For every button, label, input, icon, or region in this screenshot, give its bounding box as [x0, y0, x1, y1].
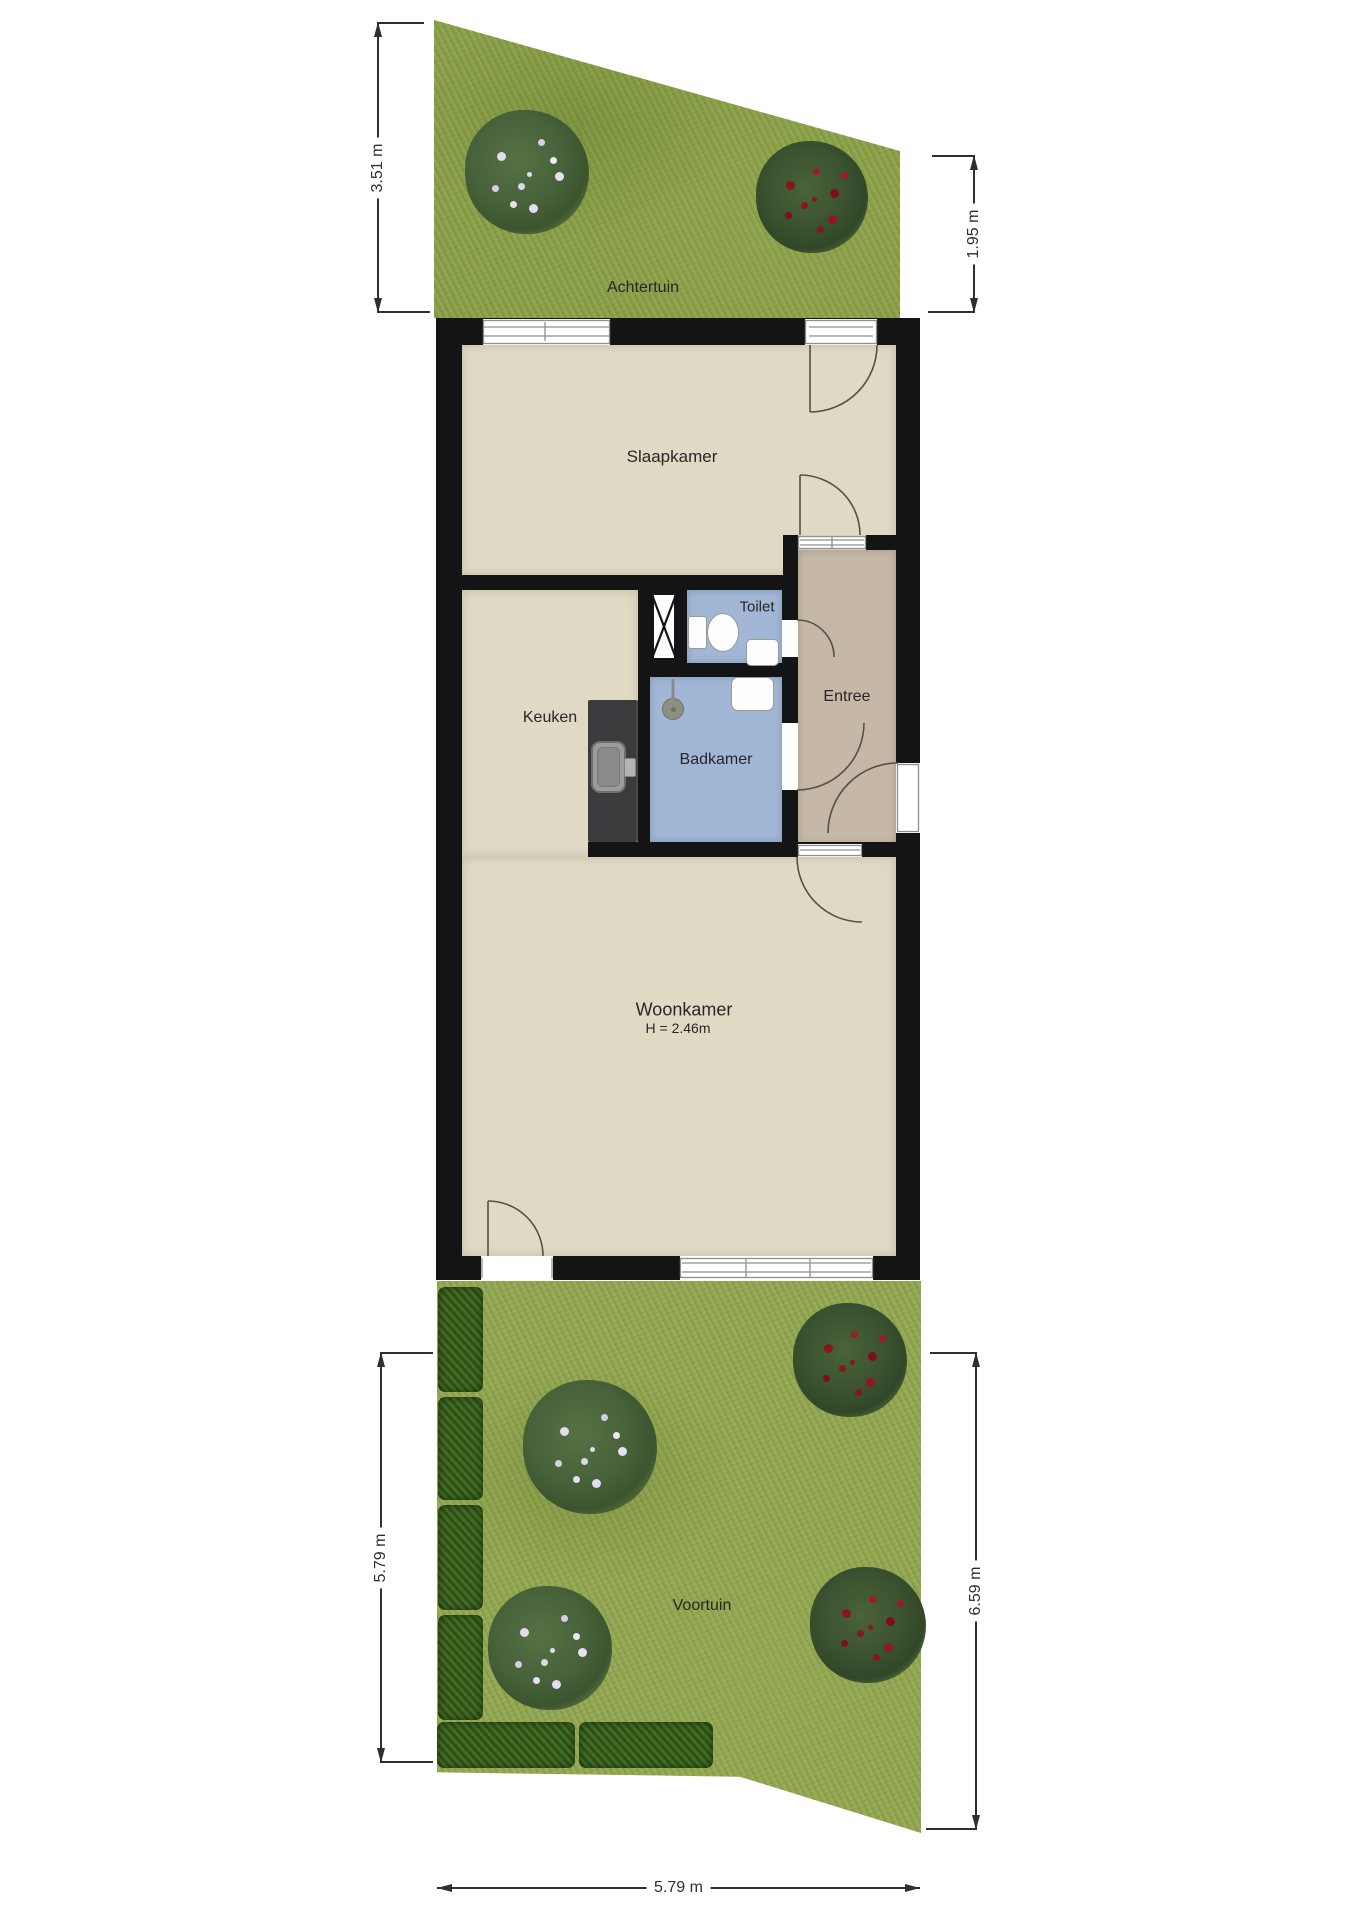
arrow-right-icon	[905, 1884, 920, 1892]
hedge-left-2	[438, 1397, 483, 1500]
arrow-left-icon	[437, 1884, 452, 1892]
white-flowers-icon	[590, 1447, 595, 1452]
dim-label: 5.79 m	[646, 1879, 711, 1897]
dim-tick	[381, 1352, 433, 1354]
back-garden-label: Achtertuin	[607, 279, 679, 297]
white-flowers-icon	[550, 1648, 555, 1653]
dim-label: 3.51 m	[367, 137, 389, 198]
shaft-symbol	[649, 590, 679, 663]
dim-back-garden-right: 1.95 m	[973, 155, 975, 313]
keuken-label: Keuken	[523, 709, 577, 727]
hedge-left-3	[438, 1505, 483, 1610]
flower-bush-icon	[488, 1586, 612, 1710]
woonkamer-label: Woonkamer	[636, 1000, 733, 1021]
wall-entree-top-right	[866, 535, 896, 550]
drain-dot-icon	[671, 707, 676, 712]
floorplan-canvas: Achtertuin	[0, 0, 1358, 1920]
wall-slaapkamer-bottom	[462, 575, 798, 590]
red-roses-icon	[868, 1625, 873, 1630]
dim-tick	[932, 155, 974, 157]
back-door	[805, 319, 877, 345]
dim-label: 1.95 m	[963, 204, 985, 265]
rose-bush-icon	[810, 1567, 926, 1683]
entree-label: Entree	[823, 688, 870, 706]
hedge-left-1	[438, 1287, 483, 1392]
dim-tick	[381, 1761, 433, 1763]
arrow-up-icon	[972, 1352, 980, 1367]
wall-entree-top-stub	[783, 535, 798, 590]
window-entree-slaapkamer	[798, 536, 866, 549]
kitchen-sink	[591, 741, 626, 793]
door-badkamer	[782, 723, 798, 790]
rose-bush-icon	[756, 141, 868, 253]
room-woonkamer	[462, 857, 896, 1256]
dim-tick	[930, 1352, 976, 1354]
front-door	[896, 763, 920, 833]
dim-label: 5.79 m	[370, 1527, 392, 1588]
red-roses-icon	[850, 1360, 855, 1365]
dim-tick	[378, 311, 430, 313]
dim-label: 6.59 m	[965, 1561, 987, 1622]
door-entree-woonkamer	[798, 844, 862, 857]
dim-back-garden-left: 3.51 m	[377, 22, 379, 313]
kitchen-faucet-icon	[624, 758, 636, 777]
wall-shaft-toilet-divider	[679, 590, 687, 663]
shower-drain-icon	[662, 698, 684, 720]
red-roses-icon	[812, 197, 817, 202]
dim-front-garden-bottom: 5.79 m	[437, 1887, 920, 1889]
rose-bush-icon	[793, 1303, 907, 1417]
hedge-bottom-2	[579, 1722, 713, 1768]
slaapkamer-label: Slaapkamer	[627, 447, 718, 467]
door-toilet	[782, 620, 798, 657]
arrow-up-icon	[377, 1352, 385, 1367]
white-flowers-icon	[527, 172, 532, 177]
toilet-washbasin-icon	[746, 639, 779, 666]
woonkamer-height-label: H = 2.46m	[646, 1020, 711, 1036]
sink-basin-icon	[597, 747, 620, 787]
dim-front-garden-left: 5.79 m	[380, 1352, 382, 1763]
dim-front-garden-right: 6.59 m	[975, 1352, 977, 1830]
toilet-bowl-icon	[707, 613, 739, 652]
arrow-up-icon	[970, 155, 978, 170]
window-woonkamer	[680, 1256, 873, 1280]
dim-tick	[928, 311, 974, 313]
flower-bush-icon	[523, 1380, 657, 1514]
badkamer-washbasin-icon	[731, 677, 774, 711]
hedge-left-4	[438, 1615, 483, 1720]
arrow-up-icon	[374, 22, 382, 37]
hedge-bottom-1	[437, 1722, 575, 1768]
toilet-cistern-icon	[688, 616, 707, 649]
dim-tick	[926, 1828, 976, 1830]
window-slaapkamer	[483, 319, 610, 345]
door-woonkamer-tuin	[481, 1256, 553, 1280]
front-garden-label: Voortuin	[673, 1597, 732, 1615]
badkamer-label: Badkamer	[680, 751, 753, 769]
flower-bush-icon	[465, 110, 589, 234]
dim-tick	[378, 22, 424, 24]
toilet-label: Toilet	[739, 599, 774, 616]
